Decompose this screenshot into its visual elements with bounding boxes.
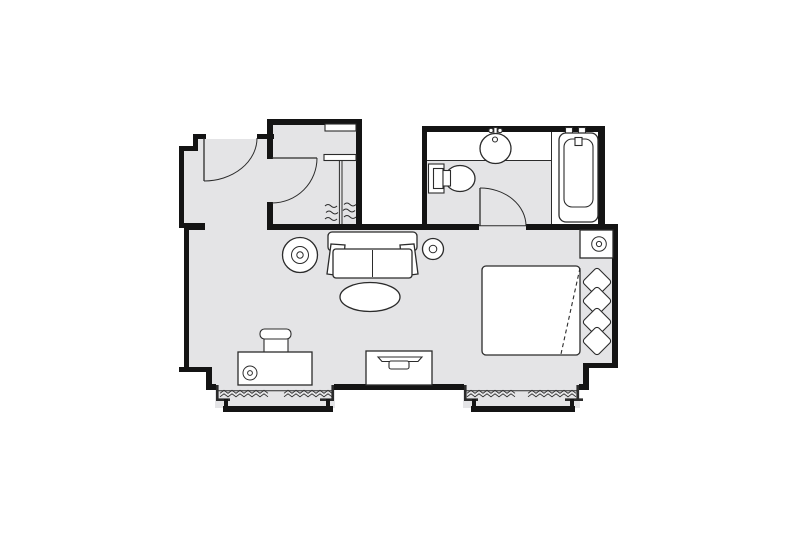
floor-lamp xyxy=(283,238,318,273)
desk xyxy=(238,352,312,385)
sofa xyxy=(327,232,418,278)
faucet-handle xyxy=(498,128,502,132)
toilet-seat xyxy=(443,171,451,187)
right-bay-floor xyxy=(463,386,580,408)
bay-connector xyxy=(472,399,476,407)
desk-chair xyxy=(260,329,291,355)
bay-connector xyxy=(224,399,228,407)
bed xyxy=(482,266,612,356)
bay-outer-wall xyxy=(223,406,333,412)
tv-stand xyxy=(389,361,409,369)
mattress xyxy=(482,266,580,355)
bay-connector xyxy=(326,399,330,407)
closet-shelf xyxy=(324,155,356,161)
tv-cabinet xyxy=(366,351,432,385)
bay-connector xyxy=(570,399,574,407)
closet-floor xyxy=(270,125,360,230)
coffee-table xyxy=(340,283,400,312)
floor-plan-canvas xyxy=(0,0,800,533)
toilet xyxy=(429,164,476,193)
floor-plan xyxy=(0,0,800,533)
toilet-tank-lid xyxy=(434,169,444,189)
nightstand xyxy=(580,230,613,258)
bay-outer-wall xyxy=(471,406,575,412)
sink-drain xyxy=(493,137,498,142)
faucet-handle xyxy=(489,128,493,132)
tub-spout xyxy=(575,138,582,146)
entry-floor xyxy=(184,139,274,230)
bathtub xyxy=(559,128,598,223)
left-bay-floor xyxy=(215,386,335,408)
closet-shelf xyxy=(325,124,356,131)
side-lamp xyxy=(423,239,444,260)
tub-basin xyxy=(564,139,593,207)
chair-back xyxy=(260,329,291,339)
